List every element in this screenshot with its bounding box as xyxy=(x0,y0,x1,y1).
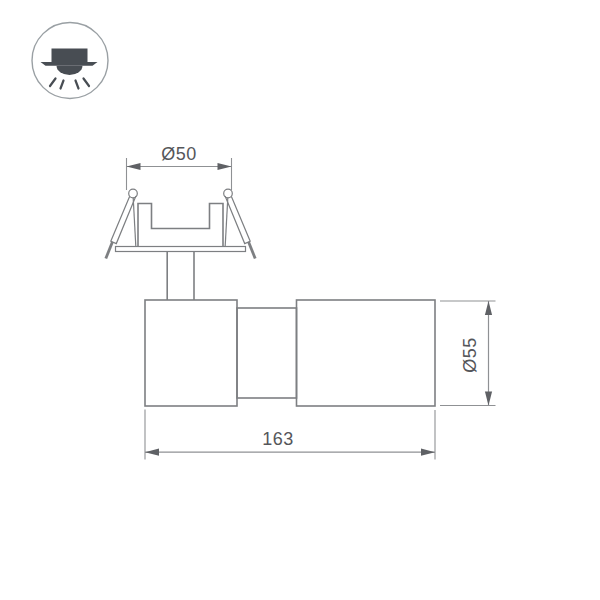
dimension-label-body-diameter: Ø55 xyxy=(460,337,480,373)
rear-housing xyxy=(145,300,237,406)
dimension-overall-length: 163 xyxy=(145,410,435,460)
screenshot-canvas: Ø50 xyxy=(0,0,600,600)
lamp-body xyxy=(145,300,435,406)
icon-light-ray-4 xyxy=(84,79,90,87)
arrowhead-down xyxy=(485,392,492,406)
icon-housing-block xyxy=(52,49,88,63)
arrowhead-left xyxy=(145,449,159,456)
clip-tip-left xyxy=(106,242,113,259)
lamp-head xyxy=(297,300,436,406)
dimension-body-diameter: Ø55 xyxy=(440,301,496,406)
spring-clip-right xyxy=(224,189,256,258)
dimension-label-cutout-diameter: Ø50 xyxy=(161,144,197,164)
icon-lamp-dome xyxy=(57,66,83,75)
trim-flange xyxy=(116,247,246,252)
icon-ceiling-line xyxy=(41,62,98,66)
spring-clip-left xyxy=(106,189,138,258)
recessed-downlight-icon xyxy=(32,23,108,99)
icon-light-ray-2 xyxy=(61,81,64,89)
arrowhead-right xyxy=(421,449,435,456)
clip-leg-left xyxy=(133,198,136,246)
connector-ring xyxy=(237,308,297,398)
icon-light-ray-3 xyxy=(76,81,79,89)
clip-tip-right xyxy=(249,242,256,259)
arrowhead-left xyxy=(127,163,141,170)
clip-arm-left xyxy=(111,196,136,244)
technical-drawing: Ø50 xyxy=(0,0,600,600)
arrowhead-right xyxy=(218,163,232,170)
dimension-cutout-diameter: Ø50 xyxy=(127,144,232,191)
bracket-top-hat-profile xyxy=(138,204,223,247)
clip-leg-right xyxy=(225,198,228,246)
arrowhead-up xyxy=(485,301,492,315)
dimension-label-overall-length: 163 xyxy=(262,429,294,449)
stem xyxy=(167,252,194,301)
clip-arm-right xyxy=(225,196,250,244)
icon-light-ray-1 xyxy=(50,79,56,87)
